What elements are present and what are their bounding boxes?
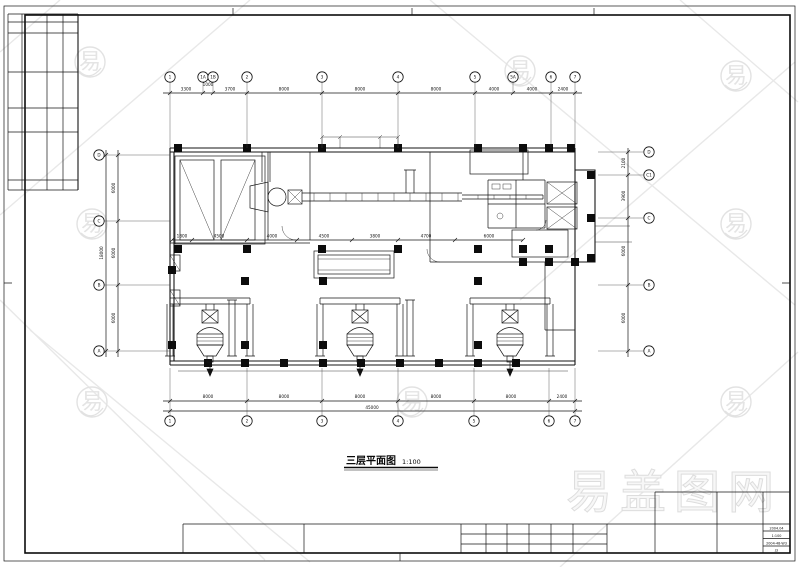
air-handling-unit-top [250, 182, 302, 212]
watermark-roundel [721, 61, 751, 91]
title-block-scale: 1:100 [772, 534, 782, 538]
elevator-shafts [547, 182, 577, 229]
right-grid-dimensions: 2100 3900 6000 6000 D C1 C B A [598, 147, 654, 357]
dimension-text: 8000 [355, 87, 366, 92]
grid-bubble-label: B [648, 283, 651, 288]
dimension-text: 6000 [111, 182, 116, 193]
dimension-text: 8000 [506, 394, 517, 399]
dimension-text: 8000 [431, 87, 442, 92]
staircase-hatch [470, 150, 528, 174]
dimension-text: 8000 [355, 394, 366, 399]
dimension-text: 3800 [370, 234, 381, 239]
wall-shafts [170, 255, 180, 306]
grid-bubble-label: 5 [474, 75, 477, 80]
door-arcs [282, 220, 546, 262]
watermark-roundel [77, 387, 107, 417]
watermark-roundel [721, 387, 751, 417]
dimension-text: 3300 [181, 87, 192, 92]
toilet-fixtures [492, 184, 511, 219]
title-block-date: 2004.04 [769, 527, 783, 531]
cad-floor-plan-drawing: 易 易盖图网 [0, 0, 800, 567]
minor-dim-chain [320, 135, 400, 148]
dimension-text: 3700 [225, 87, 236, 92]
grid-bubble-label: 7 [574, 419, 577, 424]
grid-bubble-label: 1 [169, 419, 172, 424]
dimension-text: 4500 [319, 234, 330, 239]
plan-scale-text: 1:100 [402, 458, 421, 466]
grid-bubble-label: D [97, 153, 100, 158]
cad-sheet-page: 易 易盖图网 [0, 0, 800, 567]
dimension-text: 8000 [431, 394, 442, 399]
middle-escalator [314, 251, 394, 278]
dimension-text: 2400 [558, 87, 569, 92]
interior-dimension-chain: 1800 4500 4000 4500 3800 4700 6000 [170, 234, 525, 243]
binding-table [8, 14, 78, 190]
title-block-drawing-number: 2004-48-W3 [766, 542, 787, 546]
grid-bubble-label: 6 [550, 75, 553, 80]
dimension-text: 6000 [111, 312, 116, 323]
plan-title-text: 三层平面图 [346, 455, 396, 467]
dimension-text: 6000 [111, 247, 116, 258]
grid-bubble-label: 1A [200, 75, 206, 80]
dimension-text: 4000 [489, 87, 500, 92]
grid-bubble-label: 1B [210, 75, 216, 80]
grid-bubble-label: 1 [169, 75, 172, 80]
grid-bubble-label: 5A [510, 75, 516, 80]
dimension-text: 4700 [421, 234, 432, 239]
watermark-roundel [75, 47, 105, 77]
grid-bubble-label: C1 [646, 173, 652, 178]
grid-bubble-label: 2 [246, 75, 249, 80]
dimension-text: 4000 [527, 87, 538, 92]
grid-bubbles-bottom: 1 2 3 4 5 6 7 [165, 416, 580, 426]
building-outline [170, 148, 595, 365]
dimension-text: 4000 [267, 234, 278, 239]
watermark-roundel [505, 56, 535, 86]
escalator-hatch [318, 255, 390, 274]
bottom-grid-dimensions: 8000 8000 8000 8000 8000 2400 45000 1 2 … [163, 368, 582, 426]
dimension-text: 4500 [214, 234, 225, 239]
dimension-text: 3900 [621, 190, 626, 201]
duct-riser [405, 300, 415, 356]
dimension-text: 2400 [557, 394, 568, 399]
structural-columns [168, 144, 595, 367]
dimension-text: 8000 [279, 394, 290, 399]
leader-lines [595, 226, 632, 242]
watermark-roundel [397, 387, 427, 417]
grid-bubble-label: 4 [397, 419, 400, 424]
duct-riser [227, 300, 237, 356]
floor-plan [165, 135, 632, 376]
grid-bubble-label: D [647, 150, 650, 155]
dimension-text: 2100 [621, 157, 626, 168]
title-block-sheet-number: J3 [774, 549, 778, 553]
air-handling-unit [315, 298, 405, 376]
grid-bubble-label: A [98, 349, 101, 354]
grid-bubble-label: 5 [473, 419, 476, 424]
grid-bubble-label: 4 [397, 75, 400, 80]
grid-bubble-label: 2 [246, 419, 249, 424]
left-grid-dimensions: 6000 6000 6000 18000 D C B A [94, 150, 170, 357]
dimension-text: 8000 [203, 394, 214, 399]
grid-bubble-label: 3 [321, 419, 324, 424]
dimension-text: 1800 [177, 234, 188, 239]
grid-bubble-label: B [98, 283, 101, 288]
grid-bubble-label: 6 [548, 419, 551, 424]
overall-dimension-text: 45000 [365, 405, 379, 410]
partition-walls [170, 152, 575, 330]
grid-bubble-label: 3 [321, 75, 324, 80]
grid-bubble-label: A [648, 349, 651, 354]
drawing-title: 三层平面图 1:100 [344, 455, 438, 470]
dimension-text: 6000 [621, 245, 626, 256]
dimension-text: 6000 [484, 234, 495, 239]
grid-bubble-label: C [98, 219, 101, 224]
main-duct-run [250, 152, 543, 212]
dimension-text: 8000 [279, 87, 290, 92]
dimension-text: 1000 [203, 82, 214, 87]
dimension-text: 6000 [621, 312, 626, 323]
grid-bubble-label: 7 [574, 75, 577, 80]
grid-bubble-label: C [648, 216, 651, 221]
grid-bubbles-right: D C1 C B A [644, 147, 654, 356]
escalator-hall [175, 156, 265, 244]
overall-dimension-text: 18000 [99, 246, 104, 260]
watermark-roundel [721, 209, 751, 239]
